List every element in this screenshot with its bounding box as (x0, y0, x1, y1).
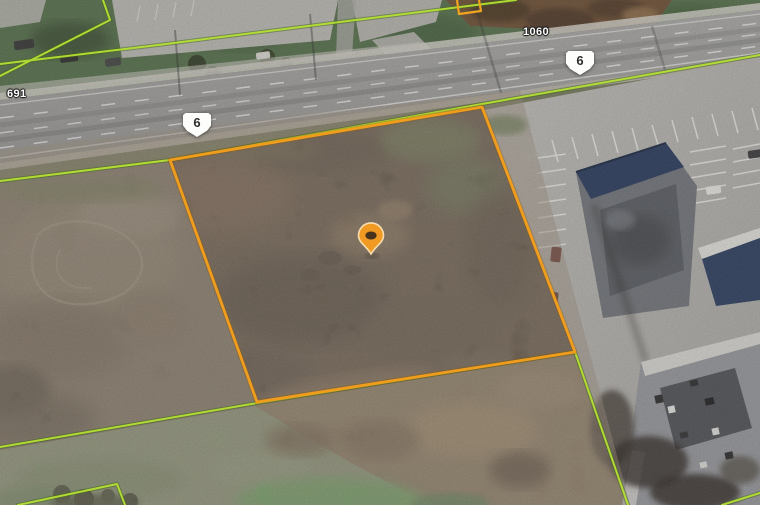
highway-shield-shape: 6 (183, 113, 211, 137)
highway-shield-right: 6 (566, 51, 594, 75)
road-number-label-1060: 1060 (523, 27, 549, 38)
satellite-imagery (0, 0, 760, 505)
highway-shield-number: 6 (576, 53, 583, 73)
highway-shield-shape: 6 (566, 51, 594, 75)
map-viewport[interactable]: 1060 691 6 6 (0, 0, 760, 505)
road-number-label-691: 691 (7, 89, 27, 100)
highway-shield-left: 6 (183, 113, 211, 137)
highway-shield-number: 6 (193, 115, 200, 135)
